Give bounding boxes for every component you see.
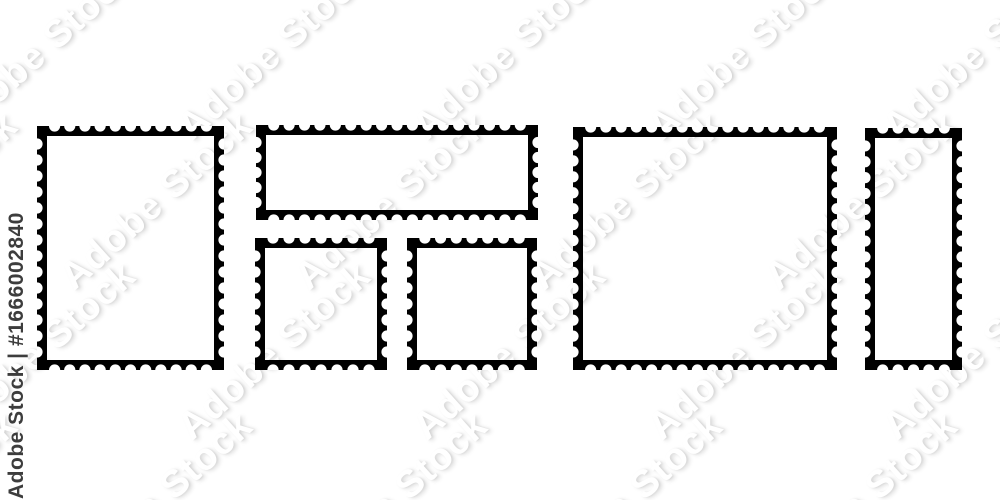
stock-credit-text: Adobe Stock | #1666002840 <box>5 212 29 499</box>
postage-stamps-group <box>0 0 1000 500</box>
stamp-wide-banner <box>256 125 538 220</box>
stamp-small-square-left <box>255 238 387 370</box>
stamp-tall-portrait <box>37 126 224 370</box>
stock-image-canvas: Adobe StockAdobe StockAdobe StockAdobe S… <box>0 0 1000 500</box>
stamp-large-square <box>573 127 837 370</box>
stamp-narrow-portrait <box>865 128 962 370</box>
stamp-small-square-right <box>407 238 537 370</box>
